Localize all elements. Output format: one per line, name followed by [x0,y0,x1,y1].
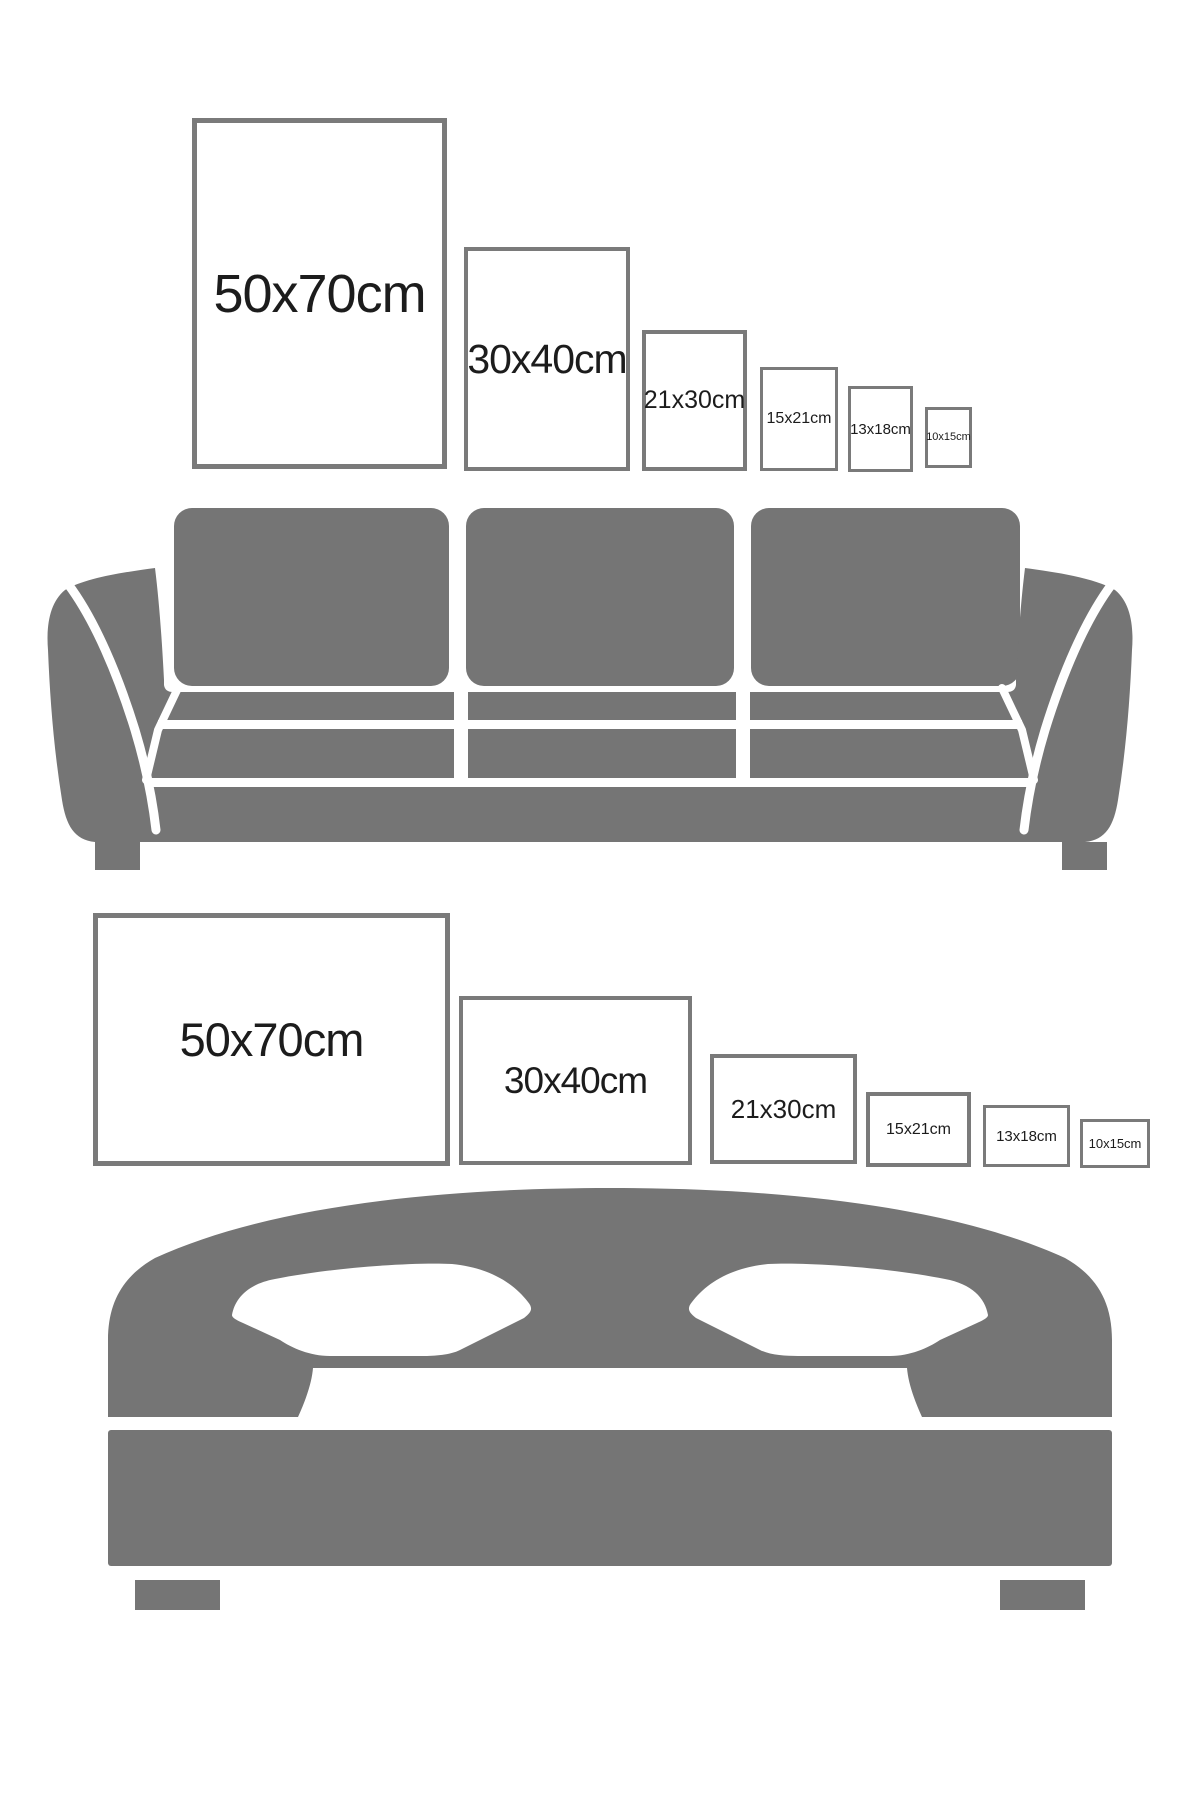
frame-label: 10x15cm [1089,1137,1142,1150]
poster-frame-21x30-portrait: 21x30cm [642,330,747,471]
frame-label: 30x40cm [504,1062,647,1099]
frame-label: 21x30cm [644,388,745,413]
frame-label: 15x21cm [767,411,832,427]
poster-frame-30x40-portrait: 30x40cm [464,247,630,471]
poster-frame-13x18-portrait: 13x18cm [848,386,913,472]
poster-frame-30x40-landscape: 30x40cm [459,996,692,1165]
frame-label: 13x18cm [850,422,911,437]
poster-frame-10x15-landscape: 10x15cm [1080,1119,1150,1168]
frame-label: 15x21cm [886,1122,951,1138]
frame-label: 50x70cm [180,1016,364,1063]
poster-frame-13x18-landscape: 13x18cm [983,1105,1070,1167]
sofa-icon [40,480,1160,880]
bed-icon [80,1180,1140,1660]
poster-frame-15x21-landscape: 15x21cm [866,1092,971,1167]
frame-label: 30x40cm [467,339,626,380]
frame-label: 50x70cm [213,267,425,321]
poster-frame-21x30-landscape: 21x30cm [710,1054,857,1164]
poster-frame-50x70-landscape: 50x70cm [93,913,450,1166]
frame-label: 21x30cm [731,1096,837,1122]
frame-label: 10x15cm [926,432,971,443]
poster-size-guide: 50x70cm 30x40cm 21x30cm 15x21cm 13x18cm … [0,0,1200,1800]
poster-frame-10x15-portrait: 10x15cm [925,407,972,468]
poster-frame-15x21-portrait: 15x21cm [760,367,838,471]
frame-label: 13x18cm [996,1129,1057,1144]
poster-frame-50x70-portrait: 50x70cm [192,118,447,469]
